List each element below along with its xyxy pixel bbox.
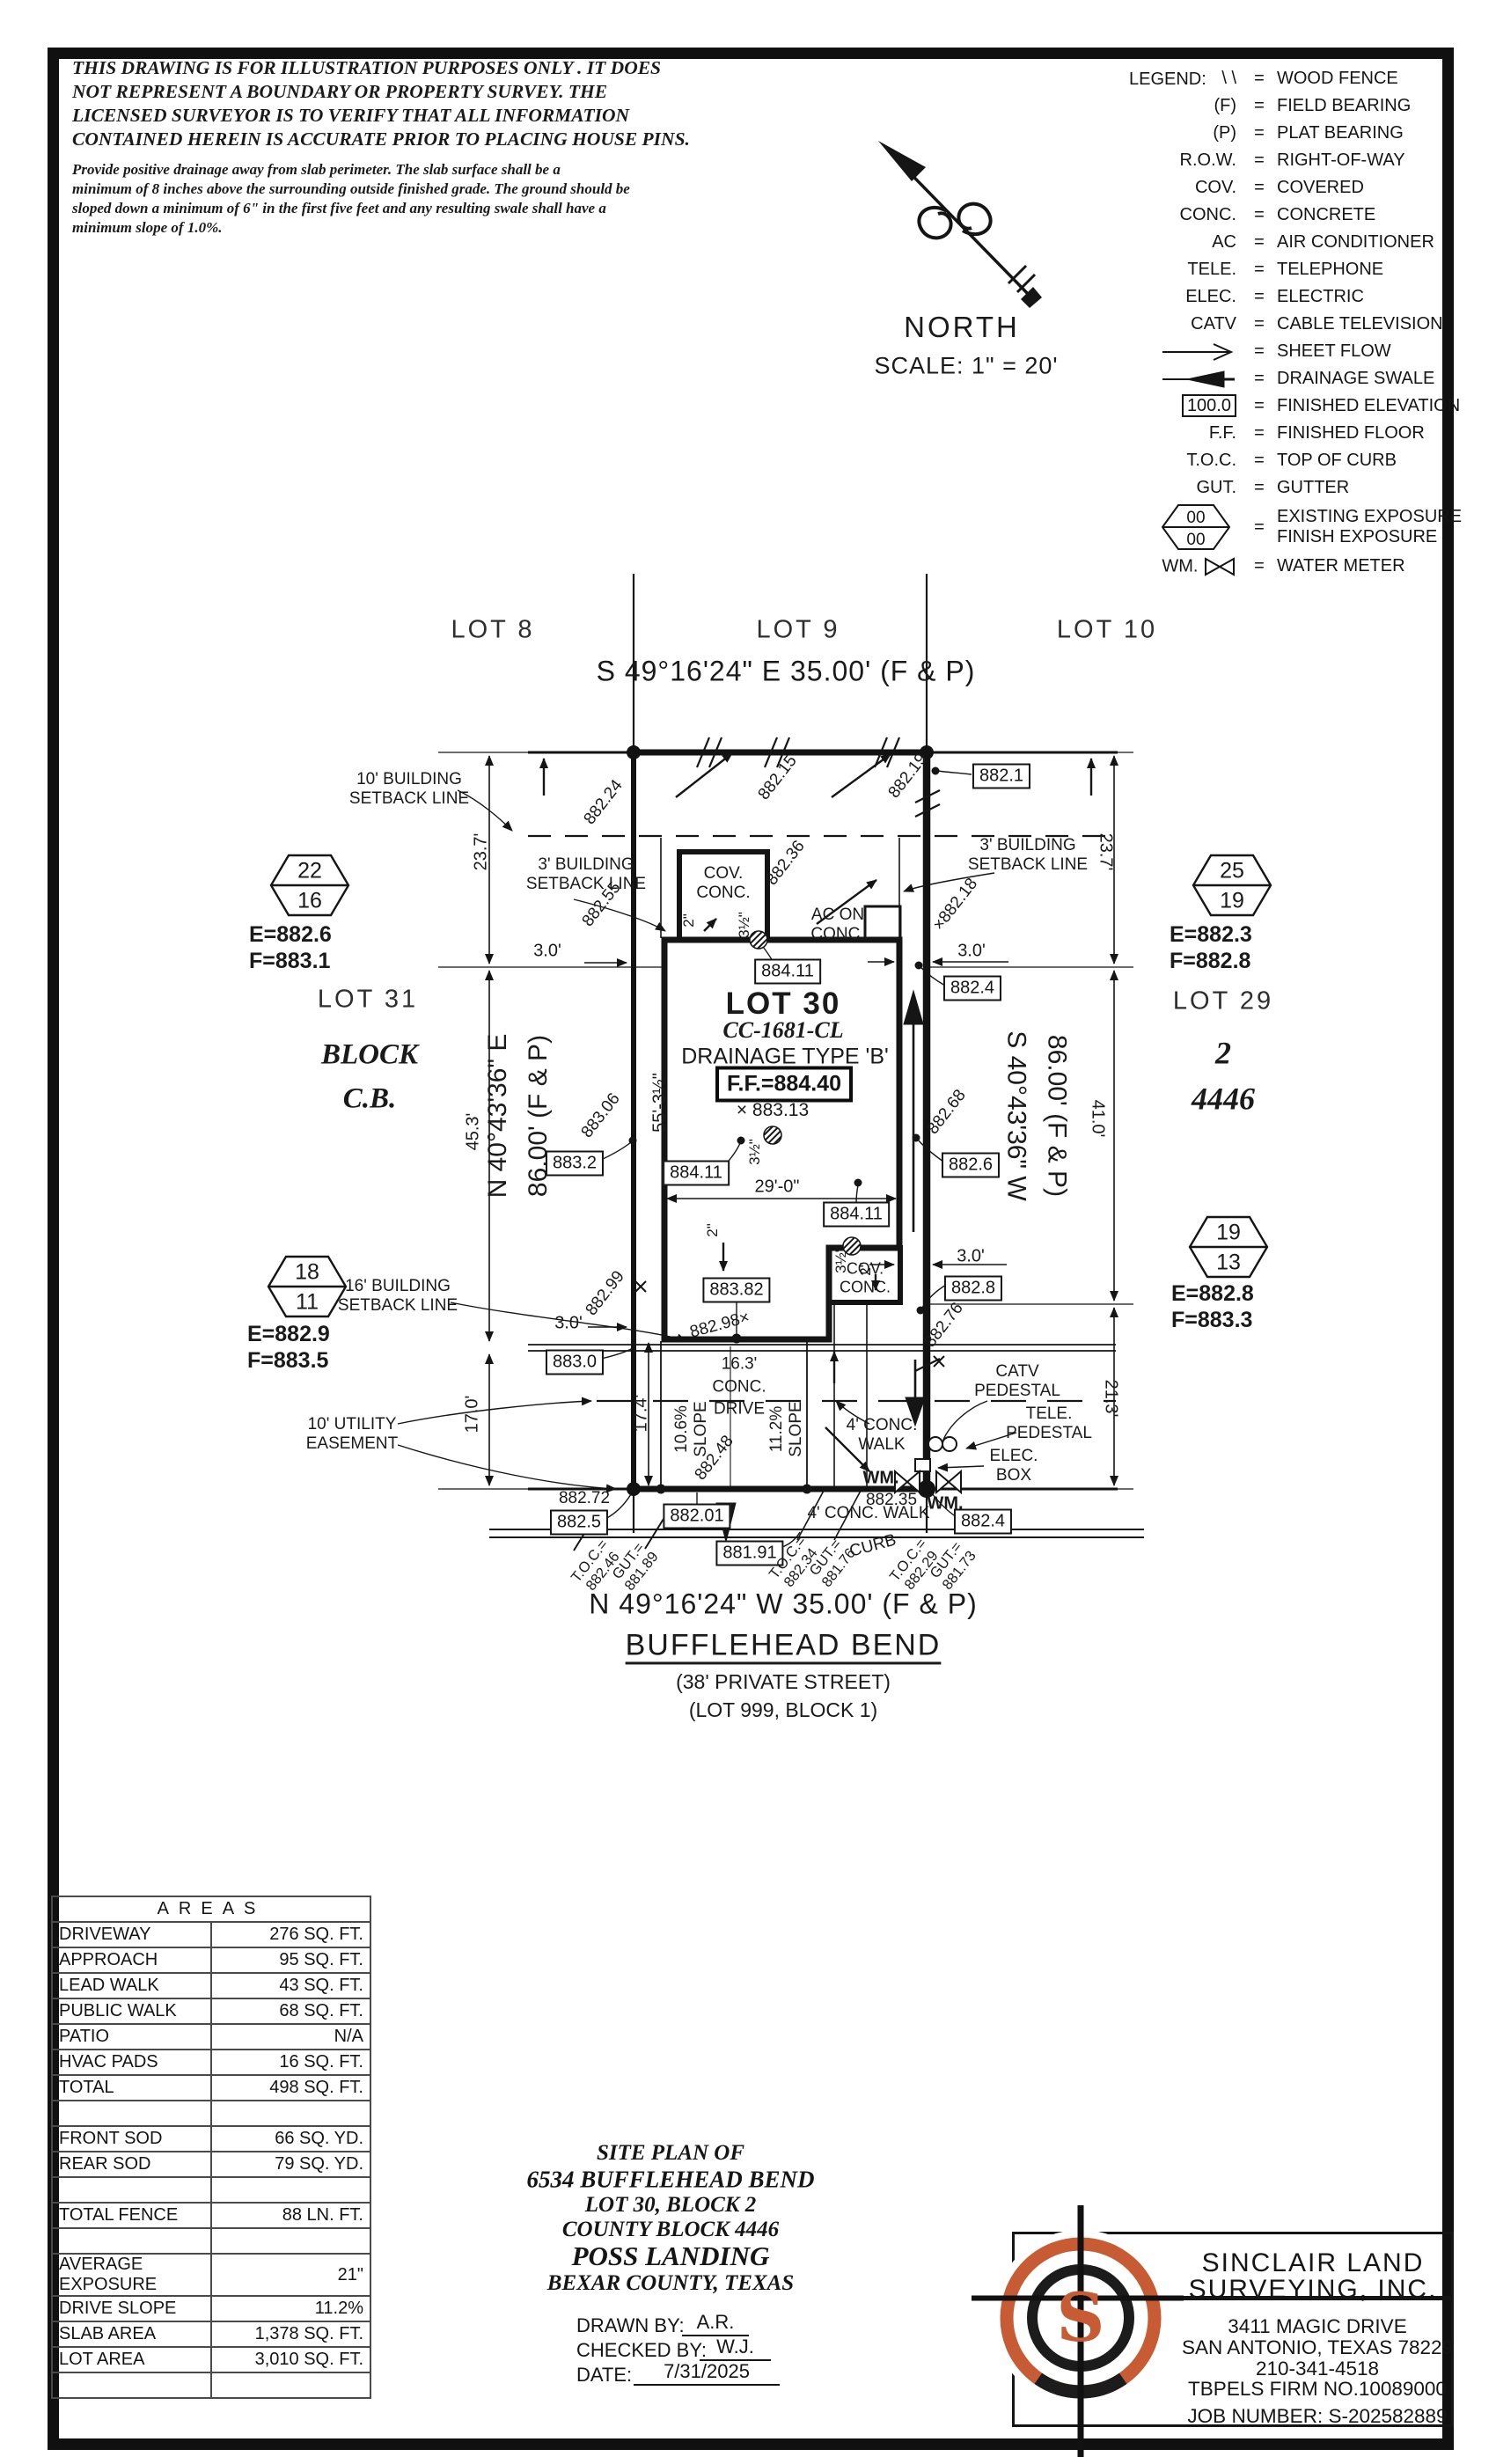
spot-elev-882-72: 882.72 (559, 1489, 610, 1508)
table-row: DRIVEWAY276 SQ. FT. (52, 1922, 370, 1947)
disclaimer-paragraph: THIS DRAWING IS FOR ILLUSTRATION PURPOSE… (72, 56, 690, 151)
scale-label: SCALE: 1" = 20' (874, 352, 1058, 379)
titleblock-subdivision: POSS LANDING (572, 2240, 770, 2272)
titleblock-address: 6534 BUFFLEHEAD BEND (526, 2167, 814, 2194)
legend-item-top-of-curb: T.O.C.=TOP OF CURB (1129, 447, 1463, 474)
covered-concrete-front-label: COV. CONC. (696, 864, 750, 903)
legend-item-covered: COV.=COVERED (1129, 174, 1463, 202)
dim-29-0: 29'-0" (755, 1177, 800, 1198)
dim-45-3: 45.3' (464, 1113, 484, 1151)
legend-item-telephone: TELE.=TELEPHONE (1129, 256, 1463, 283)
finished-elevation-box-icon: 100.0 (1182, 394, 1236, 417)
dim-2in-a: 2" (680, 913, 698, 928)
legend-item-gutter: GUT.=GUTTER (1129, 474, 1463, 502)
bearing-right-length: 86.00' (F & P) (1041, 1035, 1072, 1197)
bearing-right: S 40°43'36" W (1001, 1030, 1031, 1200)
legend-item-cable-television: CATV=CABLE TELEVISION (1129, 311, 1463, 338)
titleblock-lot-block: LOT 30, BLOCK 2 (585, 2193, 756, 2218)
elev-box-884-11-top: 884.11 (754, 959, 821, 985)
elev-box-882-5: 882.5 (550, 1510, 608, 1536)
concrete-walk-upper-label: 4' CONC. WALK (847, 1416, 918, 1455)
label-lot-29: LOT 29 (1173, 986, 1273, 1016)
tele-pedestal-label: TELE. PEDESTAL (1006, 1404, 1092, 1443)
setback-16ft-label: 16' BUILDING SETBACK LINE (338, 1277, 458, 1316)
elev-box-883-82: 883.82 (702, 1278, 770, 1303)
sinclair-logo: S (968, 2200, 1188, 2464)
water-meter-bowtie-icon (1203, 556, 1236, 577)
drainage-swale-arrow-icon (1161, 368, 1236, 391)
dim-3-0-top-left: 3.0' (533, 942, 561, 962)
svg-text:00: 00 (1186, 509, 1205, 527)
street-lot-block-label: (LOT 999, BLOCK 1) (689, 1698, 877, 1721)
areas-table-title: AREAS (52, 1896, 370, 1922)
utility-symbols (915, 1437, 957, 1471)
hex-25-19-elevations: E=882.3 F=882.8 (1170, 922, 1252, 974)
elev-box-882-8: 882.8 (944, 1276, 1002, 1302)
elev-box-882-4-bottom: 882.4 (954, 1509, 1012, 1535)
label-block-2: 2 (1215, 1035, 1231, 1071)
table-row: LEAD WALK43 SQ. FT. (52, 1973, 370, 1998)
checked-by-label: CHECKED BY: (576, 2339, 707, 2362)
elev-box-883-0: 883.0 (546, 1350, 604, 1375)
catv-pedestal-label: CATV PEDESTAL (974, 1362, 1060, 1401)
table-row: APPROACH95 SQ. FT. (52, 1947, 370, 1973)
legend-item-finished-floor: F.F.=FINISHED FLOOR (1129, 420, 1463, 447)
checked-by-value: W.J. (700, 2336, 771, 2361)
elev-box-882-4-right: 882.4 (943, 976, 1001, 1001)
date-value: 7/31/2025 (634, 2360, 780, 2386)
company-city-state: SAN ANTONIO, TEXAS 78229 (1182, 2336, 1453, 2359)
elec-box-label: ELEC. BOX (990, 1447, 1038, 1485)
legend-item-plat-bearing: (P)=PLAT BEARING (1129, 120, 1463, 147)
drawn-by-label: DRAWN BY: (576, 2314, 685, 2337)
legend-item-sheet-flow: =SHEET FLOW (1129, 338, 1463, 365)
setback-3ft-left-label: 3' BUILDING SETBACK LINE (526, 855, 646, 894)
dim-21-3: 21.3' (1101, 1380, 1121, 1418)
table-row (52, 2101, 370, 2126)
legend-item-finished-elevation: 100.0=FINISHED ELEVATION (1129, 392, 1463, 420)
table-row: AVERAGE EXPOSURE21" (52, 2254, 370, 2296)
ac-on-concrete-label: AC ON CONC. (810, 906, 864, 944)
hex-18-top: 18 (295, 1260, 319, 1286)
dim-23-7-right: 23.7' (1096, 833, 1116, 871)
elev-box-882-01: 882.01 (663, 1504, 730, 1529)
elev-box-883-2: 883.2 (546, 1151, 604, 1177)
dim-2in-b: 2" (704, 1223, 722, 1237)
drainage-note-paragraph: Provide positive drainage away from slab… (72, 160, 630, 238)
bearing-top: S 49°16'24" E 35.00' (F & P) (597, 656, 976, 688)
hex-19-13-elevations: E=882.8 F=883.3 (1171, 1281, 1254, 1333)
hex-13-bottom: 13 (1216, 1250, 1241, 1276)
hex-22-16-elevations: E=882.6 F=883.1 (249, 922, 332, 974)
table-row (52, 2228, 370, 2254)
legend-title: LEGEND: (1129, 70, 1206, 90)
dim-3-0-rear: 3.0' (957, 1247, 985, 1267)
north-label: NORTH (904, 311, 1020, 344)
bearing-left: N 40°43'36" E (483, 1034, 514, 1199)
covered-concrete-rear-label: COV. CONC. (840, 1259, 891, 1295)
hex-18-11-elevations: E=882.9 F=883.5 (247, 1322, 330, 1374)
table-row: PATION/A (52, 2024, 370, 2050)
sheet-flow-arrow-icon (1161, 341, 1236, 363)
north-arrow-icon (836, 106, 1065, 334)
company-firm-number: TBPELS FIRM NO.10089000 (1188, 2378, 1447, 2401)
date-label: DATE: (576, 2364, 632, 2387)
table-row: LOT AREA3,010 SQ. FT. (52, 2347, 370, 2372)
table-row: PUBLIC WALK68 SQ. FT. (52, 1998, 370, 2024)
street-name-label: BUFFLEHEAD BEND (626, 1628, 942, 1662)
table-row: TOTAL498 SQ. FT. (52, 2075, 370, 2101)
dim-3-0-bottom-left: 3.0' (554, 1314, 583, 1334)
table-row (52, 2372, 370, 2398)
water-meter-label-1: WM. (862, 1469, 898, 1489)
dim-17-0: 17.0' (463, 1396, 483, 1434)
concrete-walk-lower-label: 4' CONC. WALK (807, 1504, 929, 1523)
legend-item-electric: ELEC.=ELECTRIC (1129, 283, 1463, 311)
legend-item-field-bearing: (F)=FIELD BEARING (1129, 92, 1463, 120)
drive-slope-11-2-label: 11.2% SLOPE (767, 1401, 806, 1456)
site-plan-sheet: THIS DRAWING IS FOR ILLUSTRATION PURPOSE… (0, 0, 1496, 2464)
label-lot-9: LOT 9 (756, 615, 840, 644)
company-street: 3411 MAGIC DRIVE (1228, 2315, 1406, 2338)
legend-item-concrete: CONC.=CONCRETE (1129, 202, 1463, 229)
dim-3-0-top-right: 3.0' (957, 942, 986, 962)
hex-11-bottom: 11 (296, 1290, 319, 1316)
elev-box-884-11-center: 884.11 (823, 1202, 890, 1228)
label-county-block-4446: 4446 (1192, 1081, 1255, 1117)
dim-17-4: 17.4' (632, 1395, 652, 1433)
drawn-by-value: A.R. (682, 2311, 749, 2336)
company-name-line1: SINCLAIR LAND (1202, 2248, 1425, 2278)
drive-slope-10-6-label: 10.6% SLOPE (672, 1401, 711, 1456)
legend-item-row: R.O.W.=RIGHT-OF-WAY (1129, 147, 1463, 174)
elev-box-882-6: 882.6 (942, 1153, 1000, 1178)
dim-3-5in-a: 3½" (736, 912, 753, 938)
titleblock-site-plan-of: SITE PLAN OF (597, 2141, 744, 2166)
elev-box-884-11-left: 884.11 (663, 1161, 730, 1186)
finished-floor-box: F.F.=884.40 (715, 1067, 853, 1103)
table-row (52, 2177, 370, 2203)
label-lot-31: LOT 31 (318, 985, 418, 1014)
elev-box-882-1: 882.1 (972, 764, 1030, 789)
concrete-drive-label: 16.3' CONC. DRIVE (712, 1353, 766, 1421)
titleblock-county-state: BEXAR COUNTY, TEXAS (547, 2271, 794, 2296)
bearing-left-length: 86.00' (F & P) (524, 1035, 554, 1197)
hex-19b-top: 19 (1216, 1221, 1241, 1246)
titleblock-county-block: COUNTY BLOCK 4446 (562, 2218, 779, 2242)
job-number: JOB NUMBER: S-202582889 (1187, 2405, 1447, 2428)
private-street-label: (38' PRIVATE STREET) (676, 1670, 891, 1693)
label-lot-10: LOT 10 (1057, 615, 1157, 644)
table-row: TOTAL FENCE88 LN. FT. (52, 2203, 370, 2228)
hex-19-bottom: 19 (1220, 889, 1244, 914)
table-row: REAR SOD79 SQ. YD. (52, 2152, 370, 2177)
table-row: HVAC PADS16 SQ. FT. (52, 2050, 370, 2075)
dim-23-7-left: 23.7' (472, 833, 492, 871)
bearing-bottom: N 49°16'24" W 35.00' (F & P) (589, 1588, 977, 1621)
dim-55-3-5: 55'-3½" (650, 1073, 671, 1133)
hex-22-top: 22 (297, 859, 322, 884)
utility-easement-label: 10' UTILITY EASEMENT (306, 1415, 399, 1454)
label-block-cb: BLOCK C.B. (321, 1034, 418, 1121)
legend-item-air-conditioner: AC=AIR CONDITIONER (1129, 229, 1463, 256)
legend: LEGEND: \ \=WOOD FENCE (F)=FIELD BEARING… (1129, 65, 1463, 580)
table-row: DRIVE SLOPE11.2% (52, 2296, 370, 2321)
logo-letter-s: S (1057, 2278, 1105, 2357)
label-lot-8: LOT 8 (451, 615, 534, 644)
table-row: SLAB AREA1,378 SQ. FT. (52, 2321, 370, 2347)
label-cc-1681-cl: CC-1681-CL (722, 1017, 843, 1044)
table-row: FRONT SOD66 SQ. YD. (52, 2126, 370, 2152)
legend-item-drainage-swale: =DRAINAGE SWALE (1129, 365, 1463, 392)
hex-25-top: 25 (1220, 859, 1244, 884)
spot-elev-883-13: × 883.13 (737, 1100, 809, 1121)
dim-41-0: 41.0' (1088, 1100, 1108, 1138)
dim-3-5in-b: 3½" (746, 1139, 764, 1165)
hex-16-bottom: 16 (297, 889, 322, 914)
setback-10ft-label: 10' BUILDING SETBACK LINE (349, 770, 469, 809)
areas-table: AREAS DRIVEWAY276 SQ. FT. APPROACH95 SQ.… (51, 1896, 371, 2399)
company-name-line2: SURVEYING, INC. (1189, 2275, 1438, 2305)
setback-3ft-right-label: 3' BUILDING SETBACK LINE (968, 836, 1088, 875)
